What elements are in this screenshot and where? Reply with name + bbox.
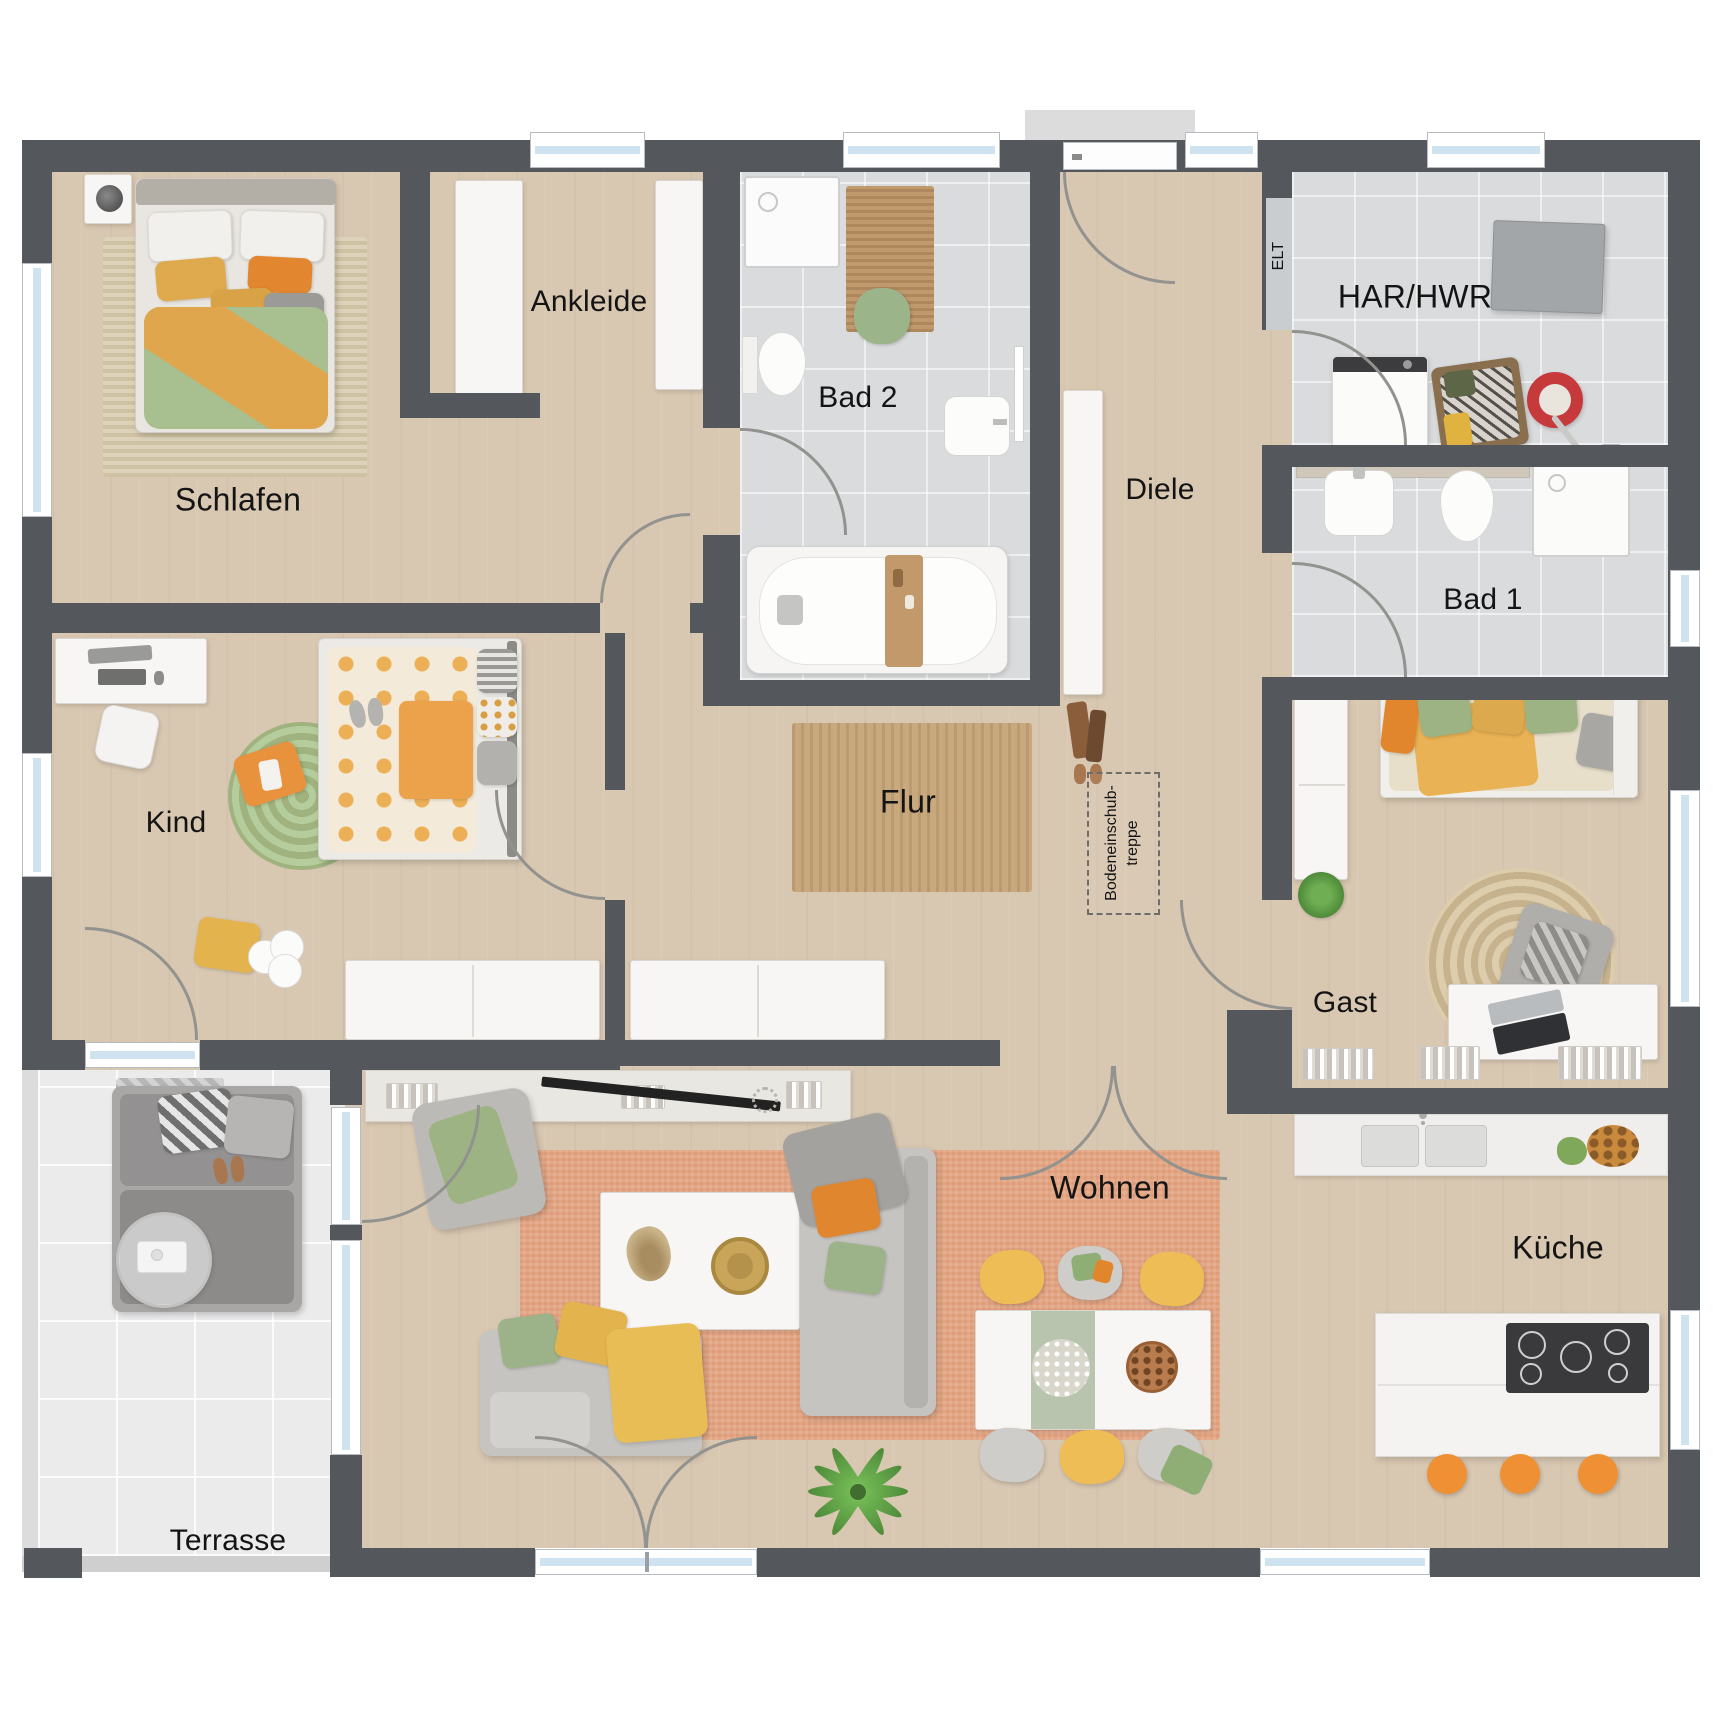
wall: [1227, 1088, 1668, 1114]
attic-label-line1: Bodeneinschub-: [1102, 785, 1123, 901]
wall: [703, 680, 1060, 706]
toilet-bath2: [742, 332, 806, 398]
room-label-bad1: Bad 1: [1443, 583, 1522, 617]
sink-basin-1: [1361, 1125, 1419, 1167]
shelf-books-1: [1302, 1048, 1374, 1080]
room-label-kind: Kind: [146, 806, 207, 840]
window: [1670, 570, 1700, 647]
room-label-kueche: Küche: [1512, 1230, 1604, 1267]
tub-faucet: [777, 595, 803, 625]
dried-plant: [620, 1222, 679, 1287]
wall: [400, 172, 430, 418]
wall: [22, 1040, 85, 1070]
room-label-ankleide: Ankleide: [531, 285, 648, 319]
shelf-books-3: [1558, 1046, 1642, 1080]
duvet: [144, 307, 328, 429]
table-flowers: [1032, 1339, 1090, 1397]
towel-rail: [1014, 346, 1024, 442]
wall: [1262, 677, 1292, 900]
fruit-bowl: [1587, 1125, 1639, 1167]
room-label-har-hwr: HAR/HWR: [1338, 279, 1492, 316]
wall: [1262, 445, 1292, 553]
coffee-table: [600, 1192, 800, 1330]
glass-table: [116, 1212, 212, 1308]
potted-plant-guest: [1298, 872, 1344, 918]
hall-wardrobe: [1063, 390, 1103, 695]
room-label-attic-stairs: Bodeneinschub- treppe: [1099, 773, 1147, 913]
double-bed: [135, 178, 335, 433]
shower-bath1: [1532, 452, 1630, 557]
window: [22, 263, 52, 517]
room-label-wohnen: Wohnen: [1050, 1170, 1170, 1207]
bar-stool-2: [1500, 1454, 1540, 1494]
terrace-glass-door: [331, 1107, 361, 1225]
wardrobe-left: [455, 180, 523, 395]
sandals: [214, 1156, 250, 1186]
kids-desk: [55, 638, 207, 704]
dresser-kind: [345, 960, 600, 1040]
entrance-door: [1063, 142, 1177, 170]
snack-bowl: [1126, 1341, 1178, 1393]
decor-gear: [752, 1087, 778, 1113]
wall: [757, 1548, 1260, 1577]
wall: [1430, 1548, 1700, 1577]
kitchen-island: [1375, 1313, 1660, 1457]
wall: [330, 1455, 362, 1548]
chaise-sofa: [800, 1148, 936, 1416]
floor-plan: Schlafen Ankleide Bad 2 Diele ELT HAR/HW…: [0, 0, 1713, 1713]
wall: [330, 1225, 362, 1240]
sink-bath2: [944, 396, 1010, 456]
laundry-basket: [1430, 356, 1529, 455]
guest-wardrobe: [1294, 690, 1348, 880]
window: [1427, 132, 1545, 168]
desk-chair: [93, 703, 162, 772]
room-label-flur: Flur: [880, 784, 936, 821]
terrace-edge-left: [22, 1070, 38, 1572]
wall-speaker: [84, 174, 132, 224]
window: [1185, 132, 1258, 168]
sofa: [480, 1330, 702, 1456]
room-label-bad2: Bad 2: [818, 381, 897, 415]
kind-terrace-door: [85, 1042, 200, 1068]
window: [1260, 1549, 1430, 1575]
bathtub: [746, 546, 1008, 674]
sink-bath1: [1324, 470, 1394, 536]
wall: [330, 1070, 362, 1105]
room-label-terrasse: Terrasse: [170, 1524, 287, 1558]
wall: [330, 1548, 535, 1577]
wall: [620, 1040, 1000, 1066]
wardrobe-right: [655, 180, 703, 390]
shelf-books-2: [1420, 1046, 1480, 1080]
room-label-schlafen: Schlafen: [175, 482, 301, 519]
cooktop: [1506, 1323, 1649, 1393]
towel-green: [854, 288, 910, 344]
wall: [1292, 677, 1668, 700]
sink-basin-2: [1425, 1125, 1487, 1167]
wall: [430, 393, 540, 418]
palm-plant: [798, 1432, 918, 1552]
window: [1670, 790, 1700, 1007]
herbs: [1557, 1137, 1587, 1165]
window: [843, 132, 1000, 168]
kids-bed: [318, 638, 522, 860]
wall: [22, 603, 600, 633]
window: [530, 132, 645, 168]
wall: [200, 1040, 620, 1070]
entrance-step: [1025, 110, 1195, 140]
window: [331, 1240, 361, 1455]
dining-chair: [1057, 1245, 1123, 1301]
gold-tray: [711, 1237, 769, 1295]
window: [1670, 1310, 1700, 1450]
flower-table: [248, 930, 308, 990]
dresser-flur: [630, 960, 885, 1040]
wall: [605, 633, 625, 790]
guest-bed: [1380, 686, 1638, 798]
shower: [744, 176, 840, 268]
room-label-elt: ELT: [1270, 242, 1288, 271]
dining-table: [975, 1310, 1211, 1430]
room-label-diele: Diele: [1125, 473, 1194, 507]
terrace-post: [24, 1548, 82, 1578]
wall: [690, 603, 740, 633]
tub-caddy: [885, 555, 923, 667]
room-label-gast: Gast: [1313, 986, 1377, 1020]
shoes: [1074, 764, 1086, 784]
bar-stool-3: [1578, 1454, 1618, 1494]
bar-stool-1: [1427, 1454, 1467, 1494]
french-doors: [535, 1549, 757, 1575]
storage-box: [1490, 220, 1605, 314]
attic-label-line2: treppe: [1123, 820, 1144, 865]
wall: [703, 172, 740, 428]
kitchen-counter: [1294, 1114, 1668, 1176]
coat-rack: [1066, 700, 1110, 782]
wall: [1292, 445, 1668, 467]
slippers: [350, 698, 386, 730]
window: [22, 753, 52, 877]
wall: [1030, 172, 1060, 706]
wall: [605, 900, 625, 1040]
